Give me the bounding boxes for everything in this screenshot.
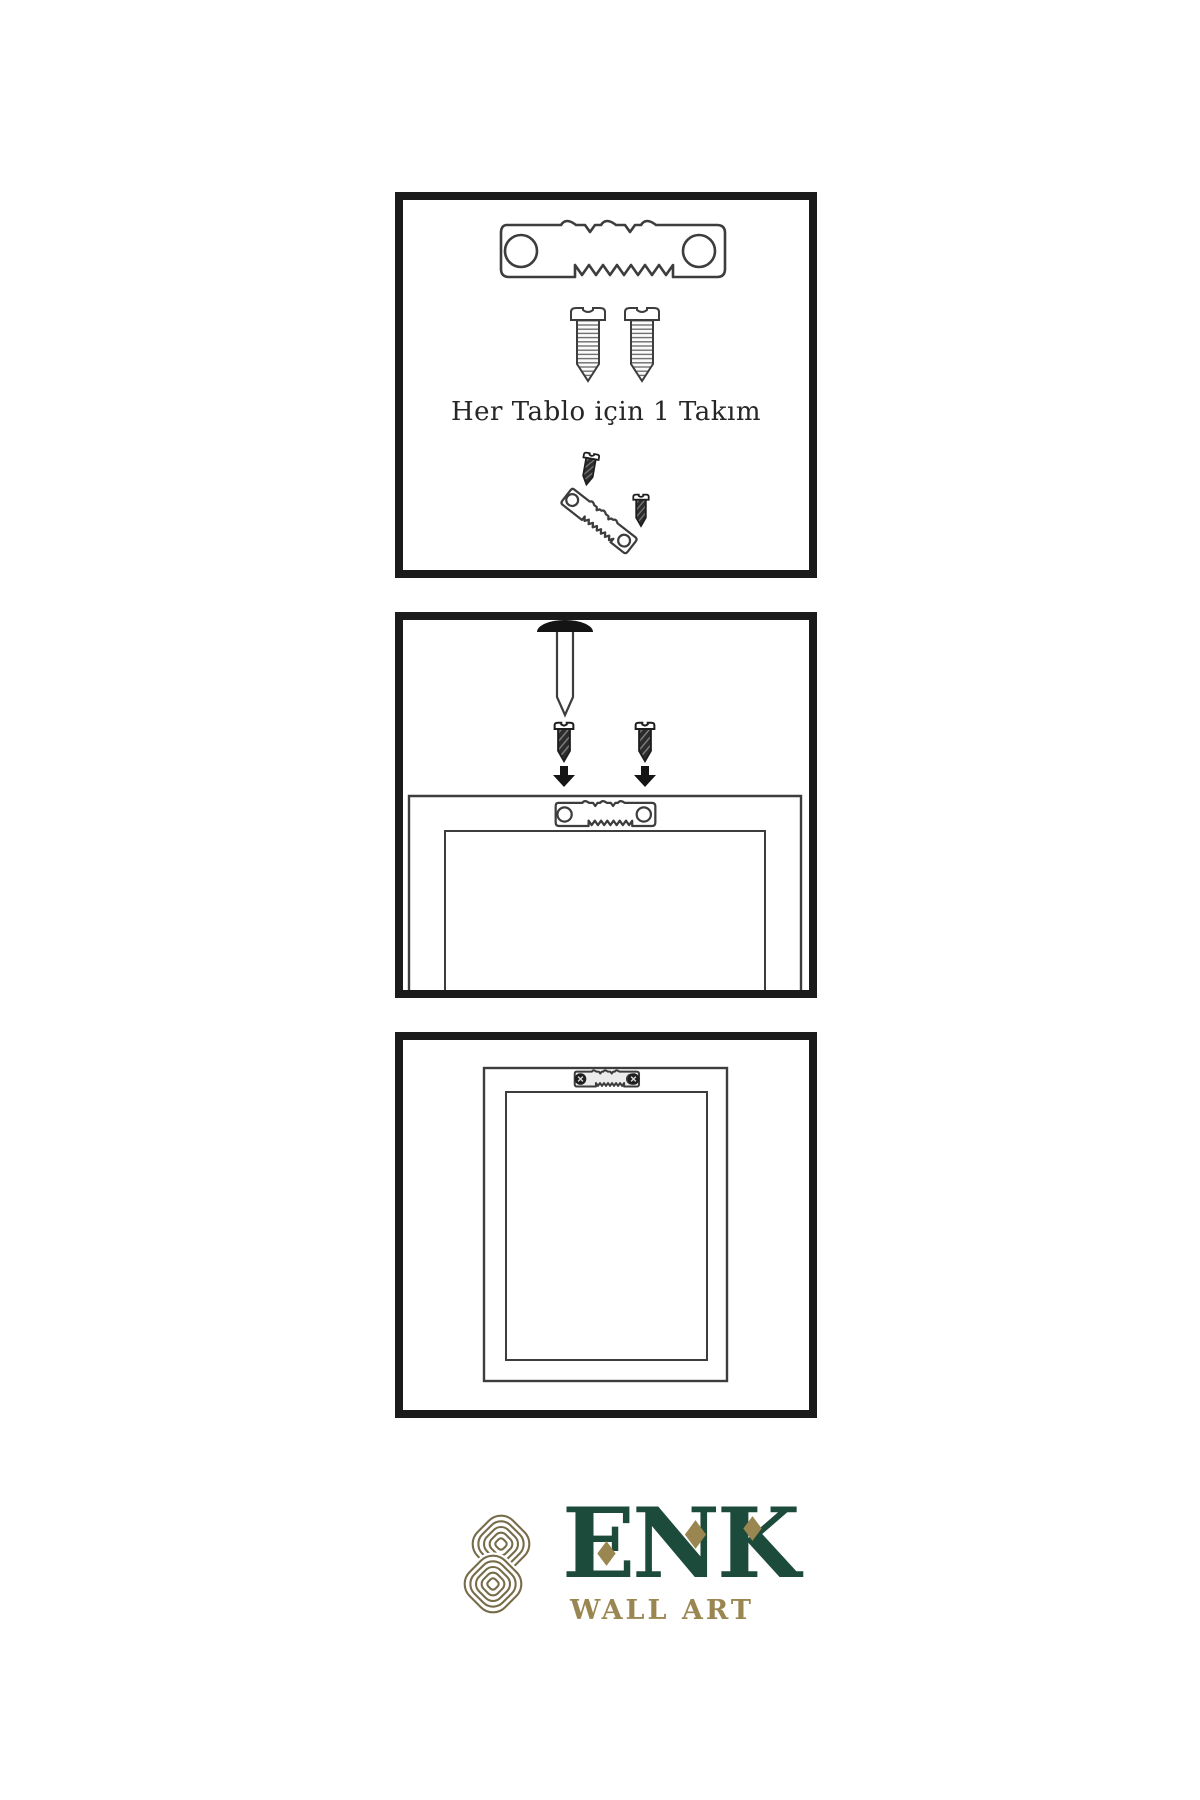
installed-sawtooth-hanger-icon <box>575 1070 640 1086</box>
brand-diamond-icon <box>685 1520 706 1549</box>
brand-name: ENK <box>562 1496 797 1592</box>
mounting-screw-icon <box>636 723 655 761</box>
brand-diamond-icon <box>597 1541 615 1566</box>
frame-back-icon <box>484 1068 727 1381</box>
sawtooth-hanger-icon <box>501 221 725 277</box>
step-2-illustration <box>403 620 809 990</box>
brand-subtitle: WALL ART <box>570 1596 754 1626</box>
step-1-illustration <box>403 200 809 570</box>
brand-diamond-icon <box>743 1516 761 1541</box>
step-1-caption: Her Tablo için 1 Takım <box>403 397 809 427</box>
down-arrow-icon <box>553 766 575 787</box>
screw-into-hanger-icon <box>579 452 600 486</box>
screw-head-icon <box>575 1073 587 1085</box>
instruction-step-2-panel <box>395 612 817 998</box>
down-arrow-icon <box>634 766 656 787</box>
mounting-screw-icon <box>625 308 659 381</box>
knot-logo-icon <box>438 1502 558 1622</box>
instruction-step-3-panel <box>395 1032 817 1418</box>
angled-sawtooth-hanger-icon <box>560 487 638 554</box>
mounting-screw-icon <box>555 723 574 761</box>
sawtooth-hanger-icon <box>556 801 656 826</box>
wall-nail-icon <box>537 620 593 715</box>
second-screw-icon <box>633 495 648 526</box>
screw-head-icon <box>628 1073 640 1085</box>
mounting-screw-icon <box>571 308 605 381</box>
step-3-illustration <box>403 1040 809 1410</box>
instruction-step-1-panel: Her Tablo için 1 Takım <box>395 192 817 578</box>
instruction-sheet: Her Tablo için 1 Takım <box>0 0 1200 1800</box>
